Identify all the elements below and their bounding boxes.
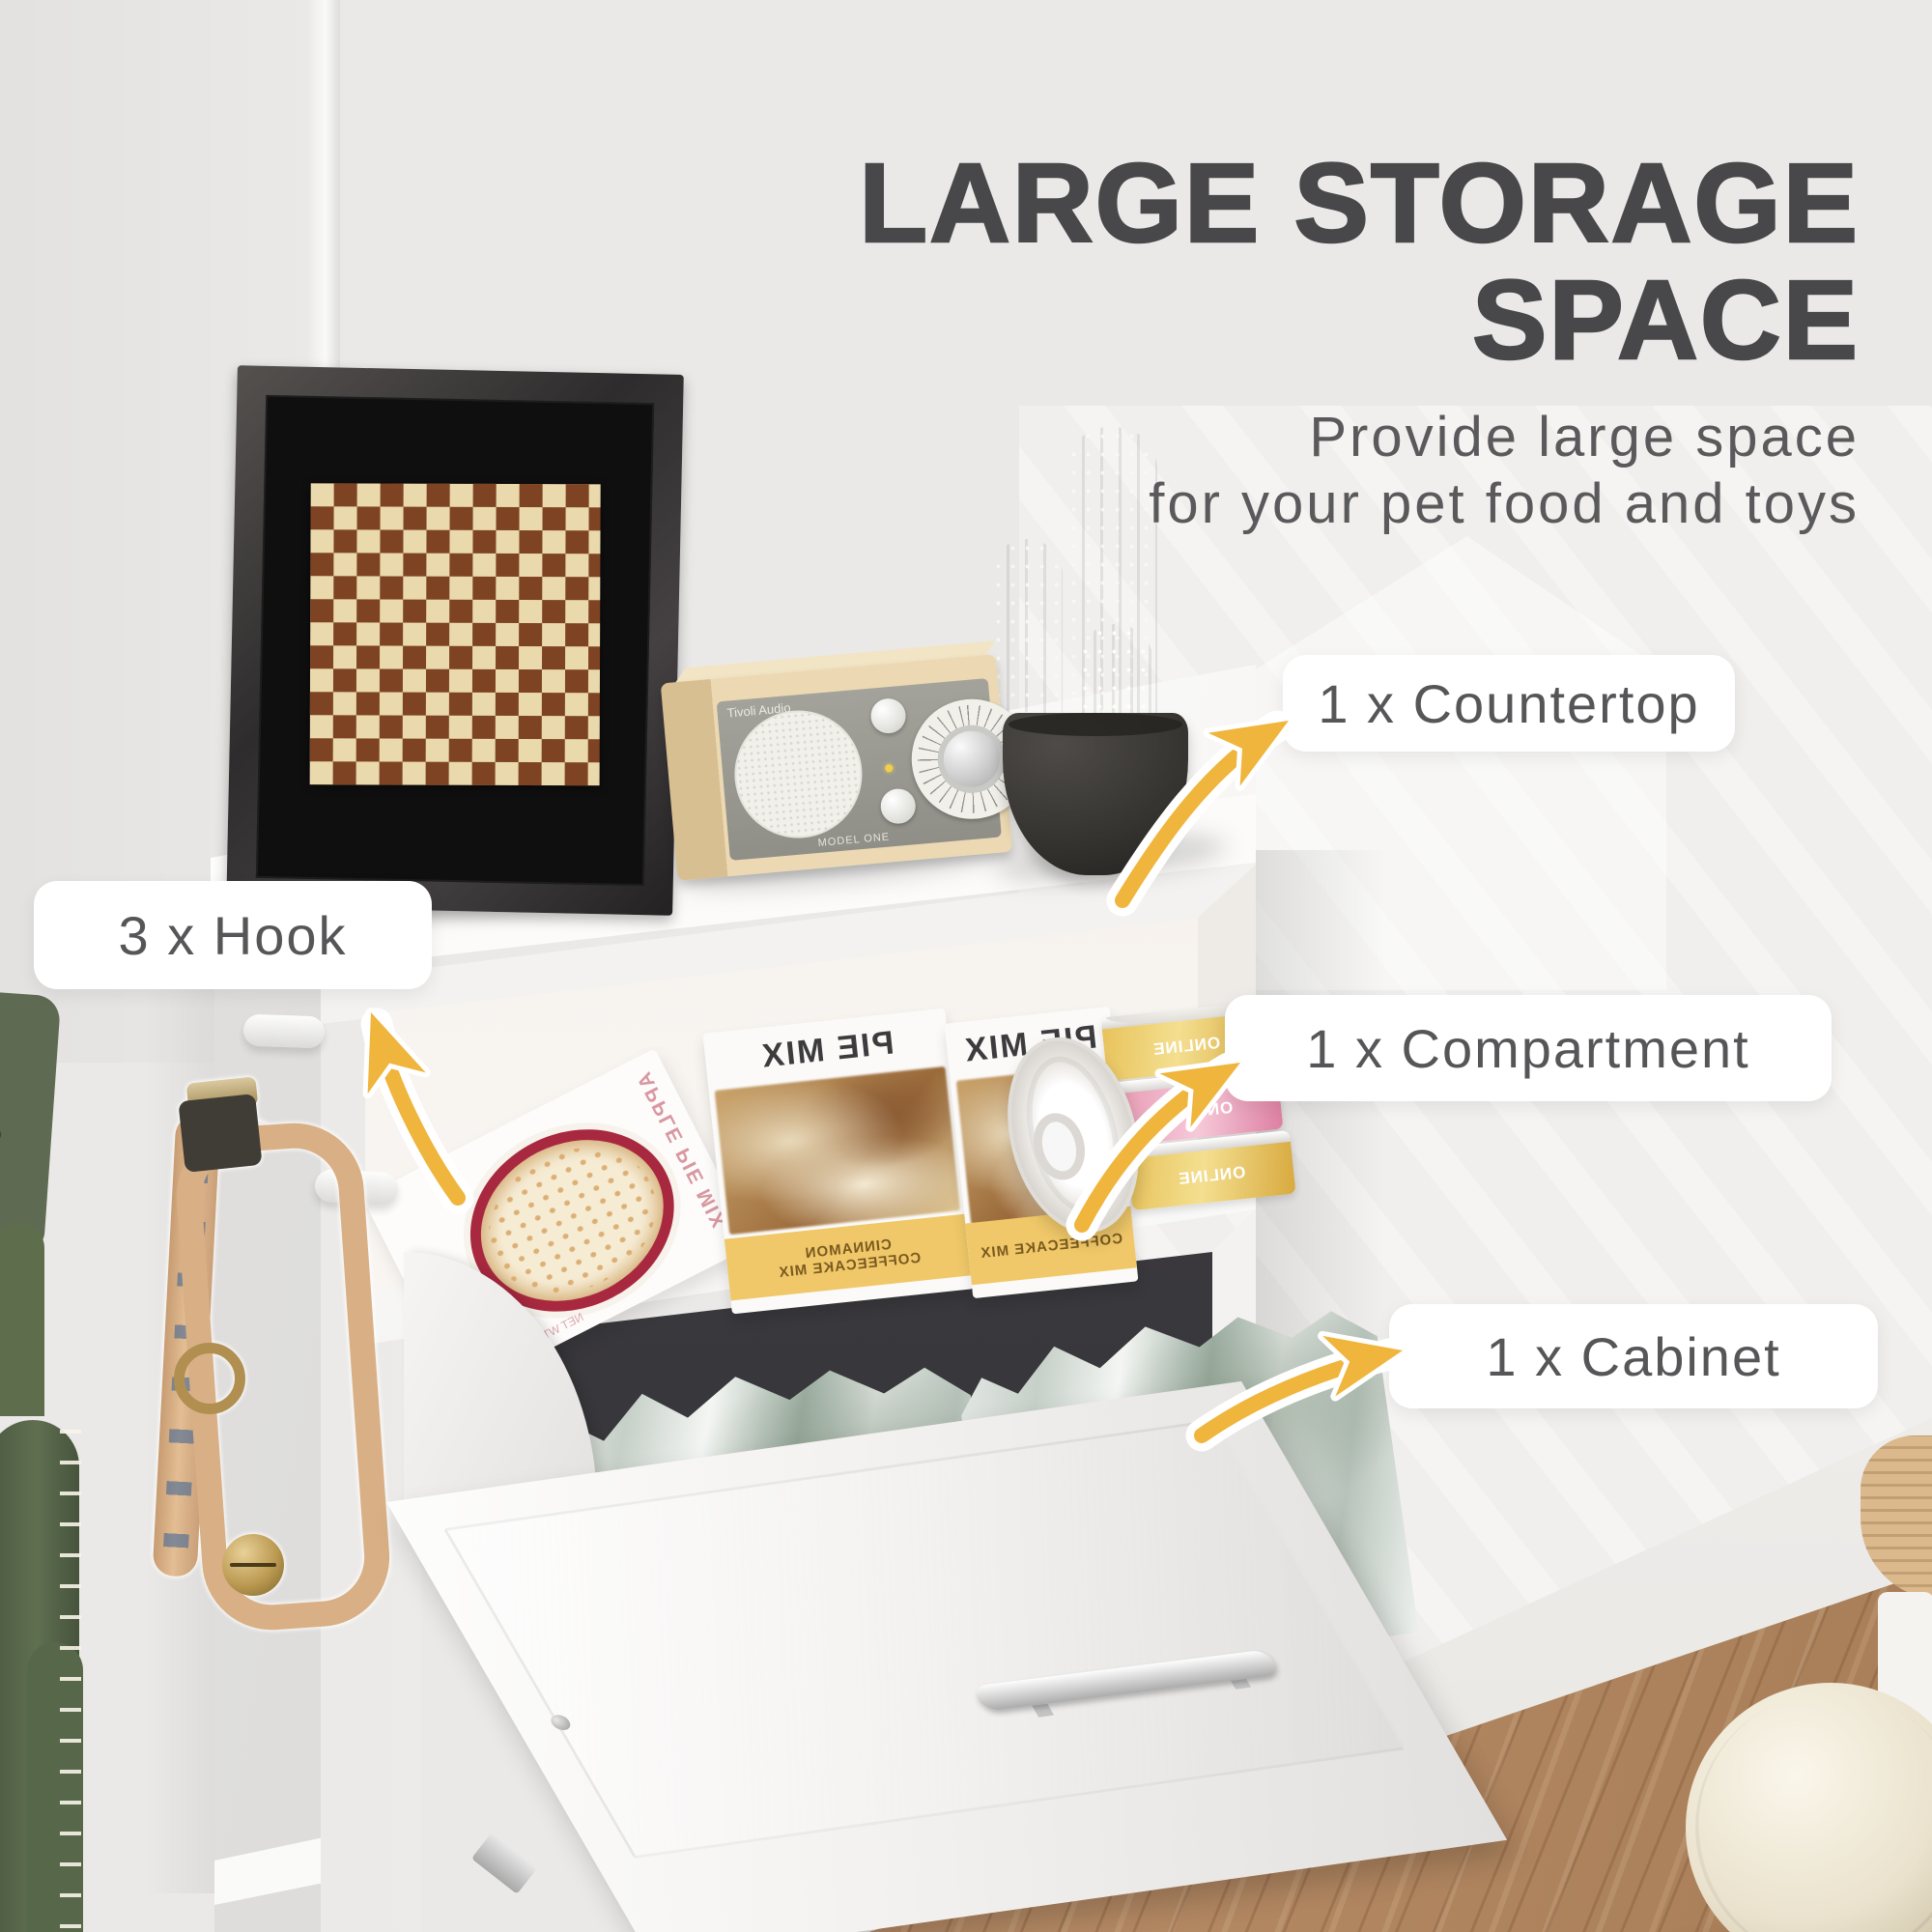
callout-cabinet-label: 1 x Cabinet <box>1486 1325 1780 1388</box>
callout-compartment-label: 1 x Compartment <box>1306 1017 1750 1080</box>
callout-countertop-label: 1 x Countertop <box>1318 672 1699 735</box>
pie-box-title: PIE MIX <box>758 1024 895 1075</box>
door-recess-panel <box>443 1419 1407 1859</box>
radio-band-knob <box>879 787 917 825</box>
pie-box-photo <box>715 1066 960 1235</box>
tabletop-radio: Tivoli Audio MODEL ONE <box>661 654 1013 881</box>
leash-buckle <box>178 1094 262 1173</box>
hook-peg-1 <box>242 1014 325 1049</box>
page-title-line2: SPACE <box>797 262 1860 379</box>
callout-cabinet: 1 x Cabinet <box>1389 1304 1878 1408</box>
radio-tuning-knob <box>935 723 1009 796</box>
subtitle-line1: Provide large space <box>797 405 1860 470</box>
door-hinge <box>471 1833 537 1894</box>
pet-leash <box>126 1082 338 1662</box>
subtitle-line2: for your pet food and toys <box>797 471 1860 537</box>
can-label: ONLINE <box>1151 1034 1221 1060</box>
callout-hook: 3 x Hook <box>34 881 432 989</box>
leash-bell <box>222 1534 284 1596</box>
floor-cactus-upper <box>0 1223 44 1416</box>
page-title-line1: LARGE STORAGE <box>797 145 1860 262</box>
radio-volume-knob <box>869 697 907 735</box>
checkerboard-art <box>310 483 601 785</box>
callout-hook-label: 3 x Hook <box>119 904 348 967</box>
floor-cactus-spines <box>60 1430 81 1932</box>
pie-band-line2: COFFEECAKE MIX <box>980 1230 1123 1261</box>
tufted-chair-edge <box>0 990 61 1257</box>
product-infographic: APPLE PIE MIX NET WT. 12.4 OZ. (352g) PI… <box>0 0 1932 1932</box>
picture-frame <box>226 365 684 916</box>
callout-compartment: 1 x Compartment <box>1225 995 1832 1101</box>
leash-ring <box>174 1343 245 1414</box>
radio-front-panel: Tivoli Audio MODEL ONE <box>717 678 1002 861</box>
pie-mix-box-1: PIE MIX CINNAMON COFFEECAKE MIX <box>702 1009 974 1315</box>
frame-mat <box>256 395 654 886</box>
radio-model: MODEL ONE <box>817 831 890 848</box>
headline-block: LARGE STORAGE SPACE Provide large space … <box>797 145 1860 537</box>
can-label: ONLINE <box>1177 1163 1246 1189</box>
callout-countertop: 1 x Countertop <box>1283 655 1735 752</box>
can-label: ONLINE <box>1164 1098 1234 1124</box>
radio-speaker <box>729 705 867 843</box>
radio-led <box>885 764 894 773</box>
